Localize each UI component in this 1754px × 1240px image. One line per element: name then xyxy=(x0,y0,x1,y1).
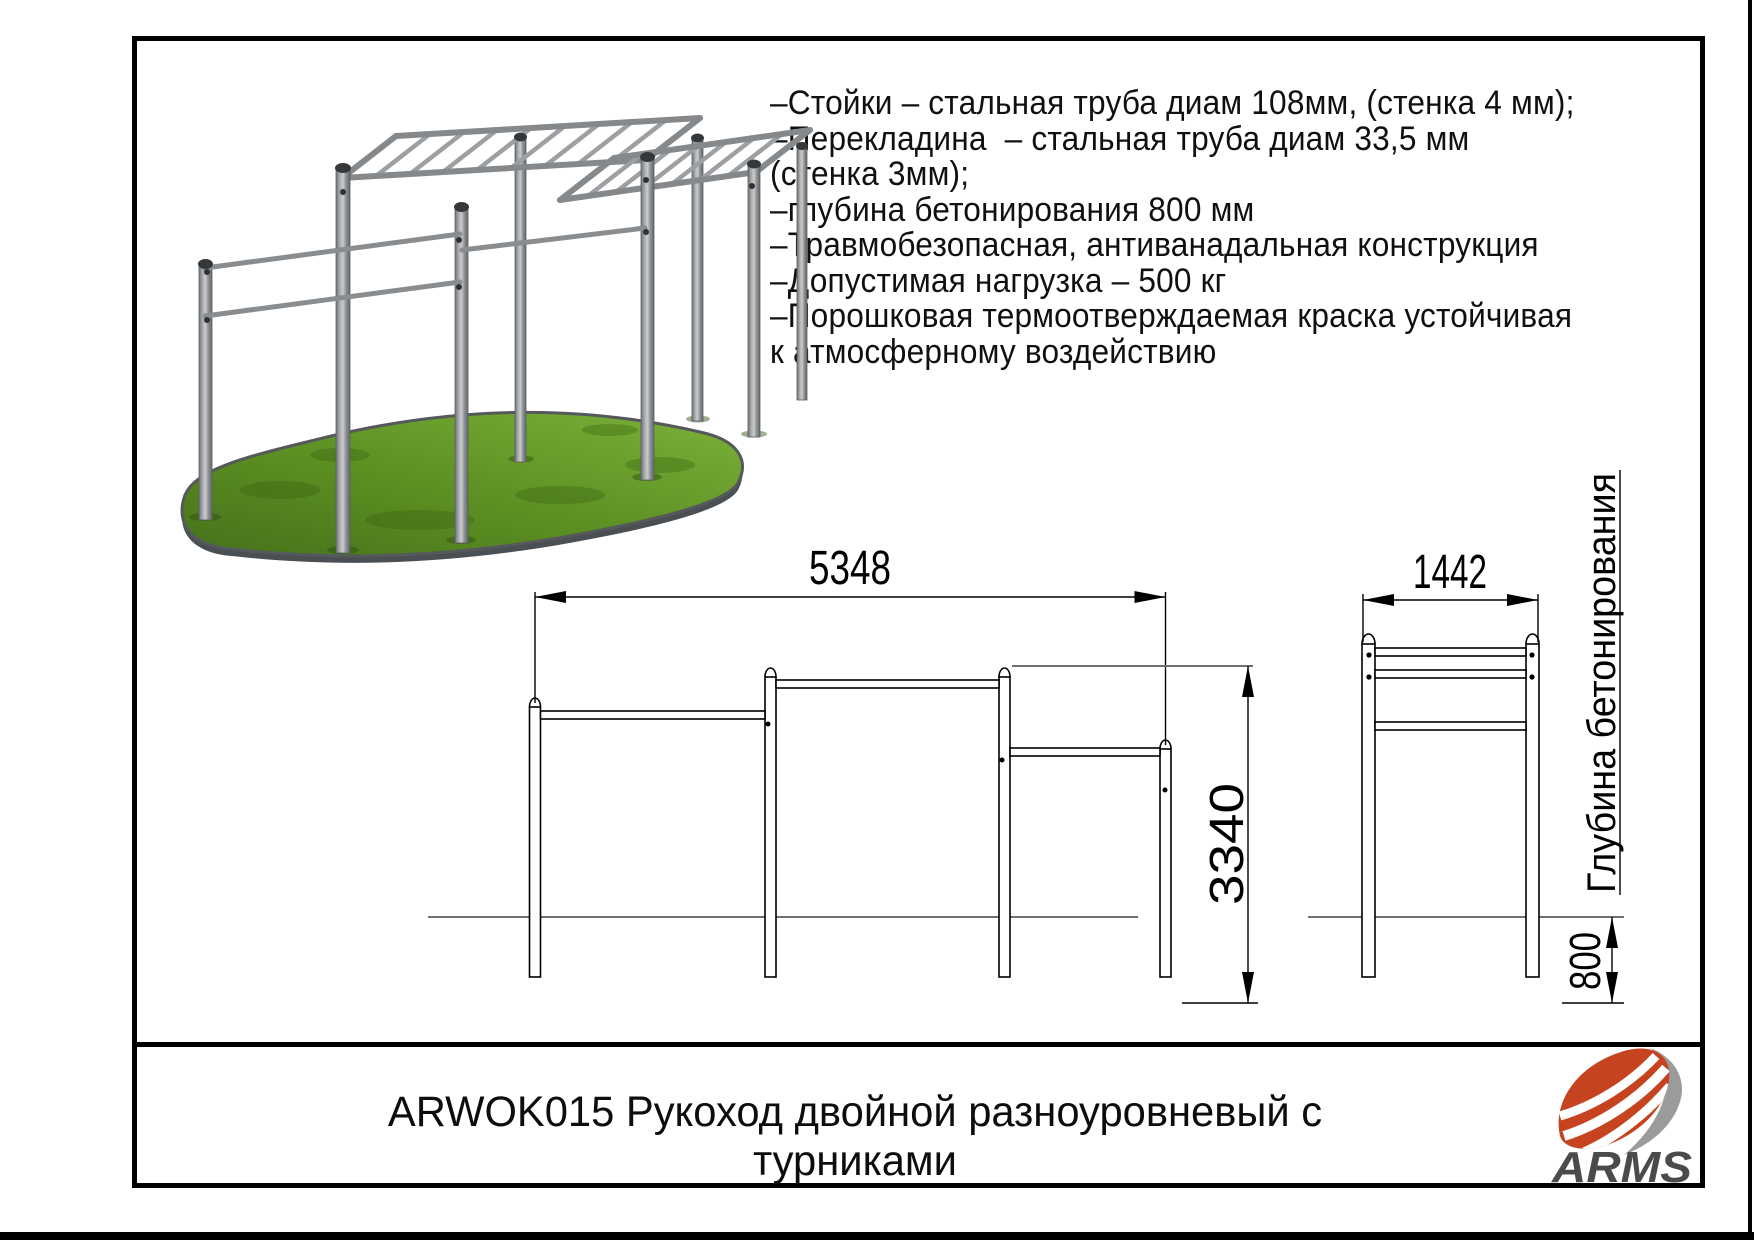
side-bar-top xyxy=(1375,648,1526,656)
logo-brand-text: ARMS xyxy=(1551,1143,1692,1192)
side-view-drawing: 1442 Глубина бетонирования 800 xyxy=(1308,470,1624,1003)
front-height-dimension: 3340 xyxy=(1012,666,1258,1003)
front-bar-middle xyxy=(776,680,999,688)
equipment-3d-render xyxy=(182,118,810,563)
front-view-drawing: 5348 3340 xyxy=(428,542,1258,1003)
footing-caption: Глубина бетонирования xyxy=(1580,473,1624,893)
front-bolts xyxy=(766,722,1168,793)
side-width-dimension: 1442 xyxy=(1363,546,1538,642)
front-bar-left xyxy=(541,711,766,719)
product-title: ARWOK015 Рукоход двойной разноуровневый … xyxy=(336,1088,1374,1186)
front-height-label: 3340 xyxy=(1201,783,1254,905)
footing-depth-annotation: Глубина бетонирования 800 xyxy=(1561,470,1624,1003)
footing-depth-label: 800 xyxy=(1561,932,1610,990)
side-bar-second xyxy=(1375,670,1526,678)
spec-sheet-page: –Стойки – стальная труба диам 108мм, (ст… xyxy=(0,0,1754,1240)
pull-up-bars xyxy=(205,228,645,316)
drawing-canvas: 5348 3340 xyxy=(0,0,1754,1240)
side-bar-lower xyxy=(1375,722,1526,730)
arms-logo: ARMS xyxy=(1551,1048,1692,1192)
front-bar-right xyxy=(1010,748,1160,756)
front-width-label: 5348 xyxy=(809,542,891,595)
post-caps xyxy=(198,133,808,270)
side-width-label: 1442 xyxy=(1413,546,1487,599)
